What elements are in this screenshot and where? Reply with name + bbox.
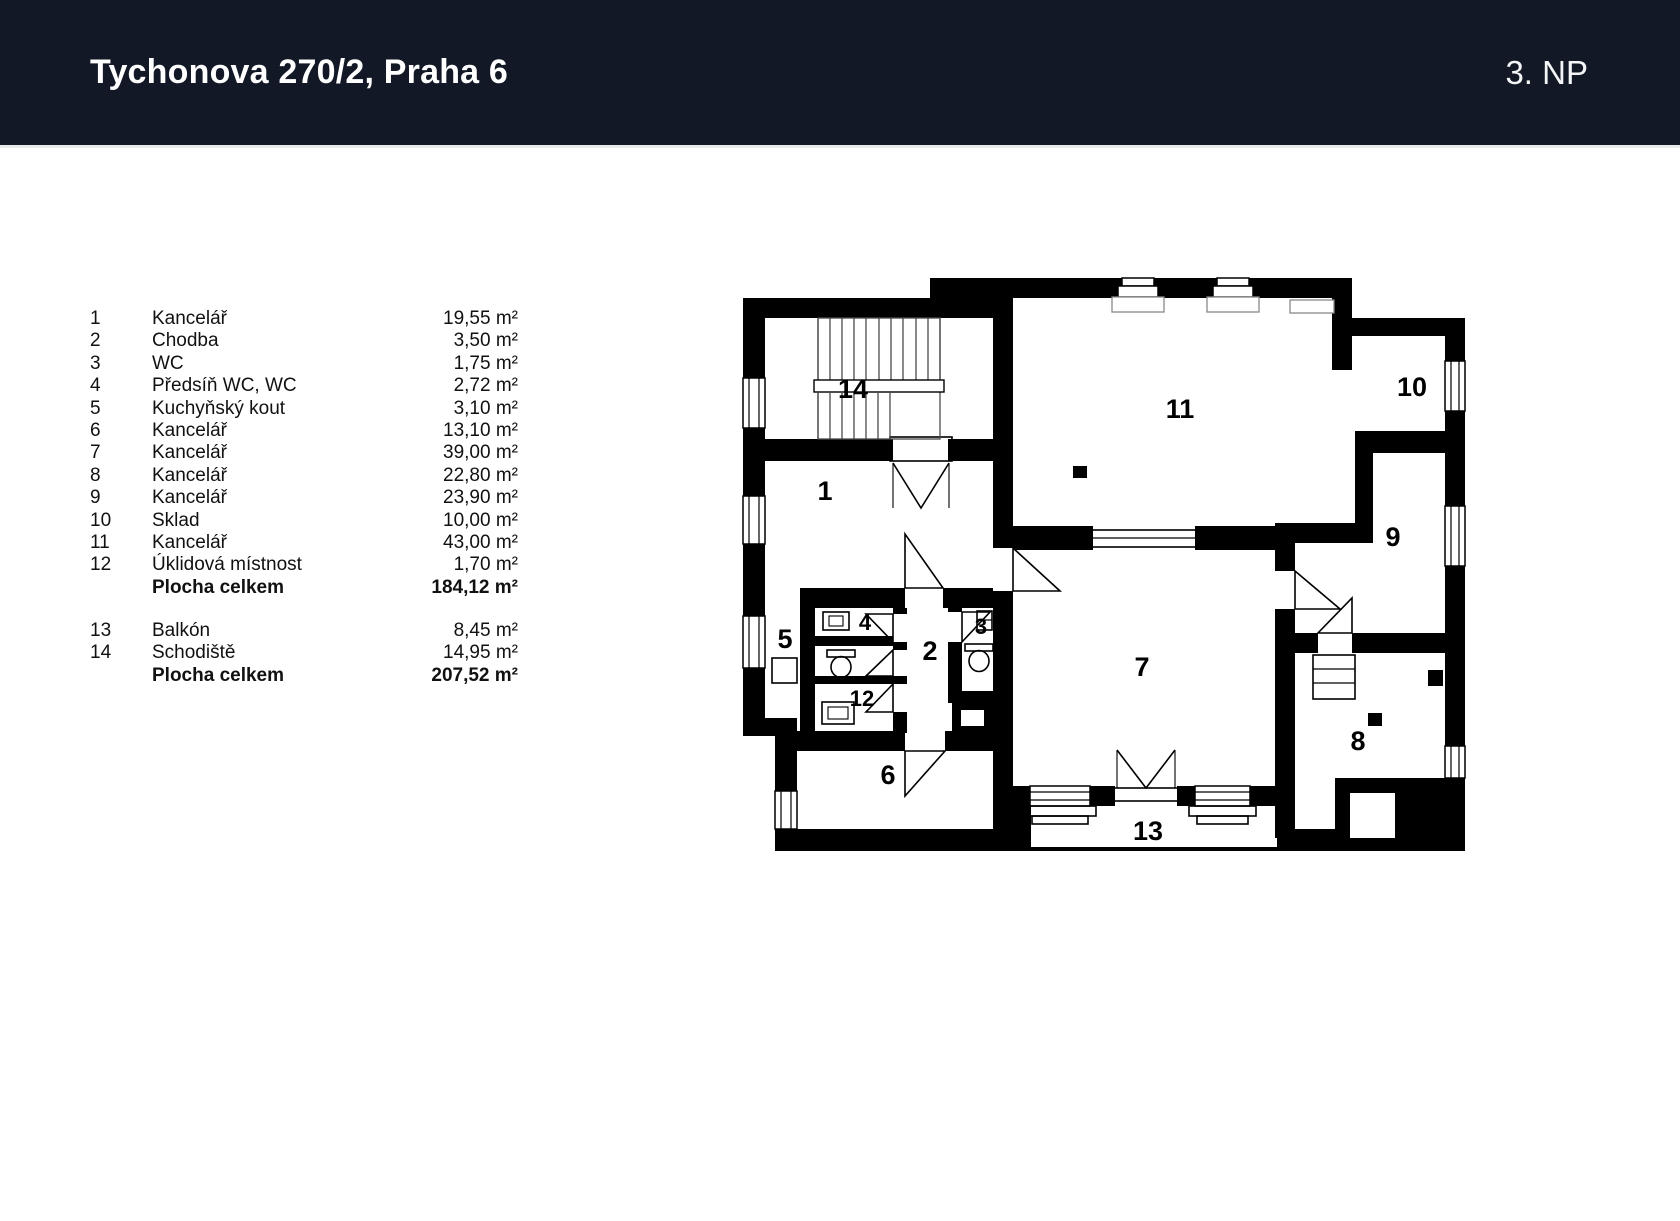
floor-plan: 14 1 11 10 9 5 4 2 3 7 12 8 6 13 xyxy=(690,276,1480,860)
legend-row: 8 Kancelář 22,80 m² xyxy=(90,465,518,487)
legend-row: 9 Kancelář 23,90 m² xyxy=(90,487,518,509)
room-number: 2 xyxy=(90,330,152,352)
room-label-2: 2 xyxy=(922,636,937,666)
room-name: Kancelář xyxy=(152,532,398,554)
room-number: 10 xyxy=(90,510,152,532)
legend-total-row: Plocha celkem 207,52 m² xyxy=(90,665,518,687)
room-number: 11 xyxy=(90,532,152,554)
room-label-1: 1 xyxy=(817,476,832,506)
sink-icon xyxy=(823,612,849,630)
room-number: 12 xyxy=(90,554,152,576)
legend-gap xyxy=(90,599,518,620)
room-name: Kancelář xyxy=(152,420,398,442)
legend-row: 5 Kuchyňský kout 3,10 m² xyxy=(90,398,518,420)
room-area: 14,95 m² xyxy=(398,642,518,664)
total-label: Plocha celkem xyxy=(152,665,398,687)
room-label-5: 5 xyxy=(777,624,792,654)
legend-row: 6 Kancelář 13,10 m² xyxy=(90,420,518,442)
room-area: 2,72 m² xyxy=(398,375,518,397)
room-area: 8,45 m² xyxy=(398,620,518,642)
legend-row: 2 Chodba 3,50 m² xyxy=(90,330,518,352)
page-title: Tychonova 270/2, Praha 6 xyxy=(90,53,508,92)
kitchen-unit-icon xyxy=(772,658,797,683)
room-label-12: 12 xyxy=(850,686,874,711)
legend-row: 1 Kancelář 19,55 m² xyxy=(90,308,518,330)
room-name: Úklidová místnost xyxy=(152,554,398,576)
room-area: 10,00 m² xyxy=(398,510,518,532)
room-area: 13,10 m² xyxy=(398,420,518,442)
room-number: 6 xyxy=(90,420,152,442)
room-name: Kancelář xyxy=(152,308,398,330)
room-number: 8 xyxy=(90,465,152,487)
legend-row: 3 WC 1,75 m² xyxy=(90,353,518,375)
column-dots xyxy=(1073,466,1443,726)
room-number: 13 xyxy=(90,620,152,642)
room-name: Sklad xyxy=(152,510,398,532)
legend-row: 13 Balkón 8,45 m² xyxy=(90,620,518,642)
header-bar: Tychonova 270/2, Praha 6 3. NP xyxy=(0,0,1680,148)
toilet-icon xyxy=(827,650,855,678)
total-area: 207,52 m² xyxy=(398,665,518,687)
room-area: 43,00 m² xyxy=(398,532,518,554)
floor-label: 3. NP xyxy=(1505,54,1588,92)
legend-row: 14 Schodiště 14,95 m² xyxy=(90,642,518,664)
room-name: Kancelář xyxy=(152,487,398,509)
room-name: Chodba xyxy=(152,330,398,352)
room-area: 1,70 m² xyxy=(398,554,518,576)
legend-row: 7 Kancelář 39,00 m² xyxy=(90,442,518,464)
room-label-11: 11 xyxy=(1166,394,1195,424)
room-label-10: 10 xyxy=(1397,372,1427,402)
room-number: 7 xyxy=(90,442,152,464)
room-label-13: 13 xyxy=(1133,816,1163,846)
room-name: Předsíň WC, WC xyxy=(152,375,398,397)
room-area: 23,90 m² xyxy=(398,487,518,509)
room-name: Kancelář xyxy=(152,442,398,464)
legend: 1 Kancelář 19,55 m² 2 Chodba 3,50 m² 3 W… xyxy=(90,308,518,687)
total-label: Plocha celkem xyxy=(152,577,398,599)
room-label-6: 6 xyxy=(880,760,895,790)
room-area: 3,10 m² xyxy=(398,398,518,420)
room-area: 19,55 m² xyxy=(398,308,518,330)
legend-row: 11 Kancelář 43,00 m² xyxy=(90,532,518,554)
legend-row: 10 Sklad 10,00 m² xyxy=(90,510,518,532)
room-number: 1 xyxy=(90,308,152,330)
room-number: 14 xyxy=(90,642,152,664)
staircase xyxy=(814,318,944,439)
room-name: Schodiště xyxy=(152,642,398,664)
room-label-14: 14 xyxy=(838,374,868,404)
room-number: 3 xyxy=(90,353,152,375)
room-label-3: 3 xyxy=(975,614,987,639)
room-label-7: 7 xyxy=(1134,652,1149,682)
room-name: Kuchyňský kout xyxy=(152,398,398,420)
room-label-9: 9 xyxy=(1385,522,1400,552)
room-name: Balkón xyxy=(152,620,398,642)
room-name: Kancelář xyxy=(152,465,398,487)
walls xyxy=(743,278,1465,851)
room-area: 39,00 m² xyxy=(398,442,518,464)
legend-total-row: Plocha celkem 184,12 m² xyxy=(90,577,518,599)
room-area: 22,80 m² xyxy=(398,465,518,487)
legend-row: 4 Předsíň WC, WC 2,72 m² xyxy=(90,375,518,397)
room-name: WC xyxy=(152,353,398,375)
room-number: 4 xyxy=(90,375,152,397)
total-area: 184,12 m² xyxy=(398,577,518,599)
room-number: 5 xyxy=(90,398,152,420)
room-area: 3,50 m² xyxy=(398,330,518,352)
room-number: 9 xyxy=(90,487,152,509)
legend-row: 12 Úklidová místnost 1,70 m² xyxy=(90,554,518,576)
room-label-4: 4 xyxy=(859,610,872,635)
room-label-8: 8 xyxy=(1350,726,1365,756)
toilet-icon xyxy=(965,644,993,672)
room-area: 1,75 m² xyxy=(398,353,518,375)
